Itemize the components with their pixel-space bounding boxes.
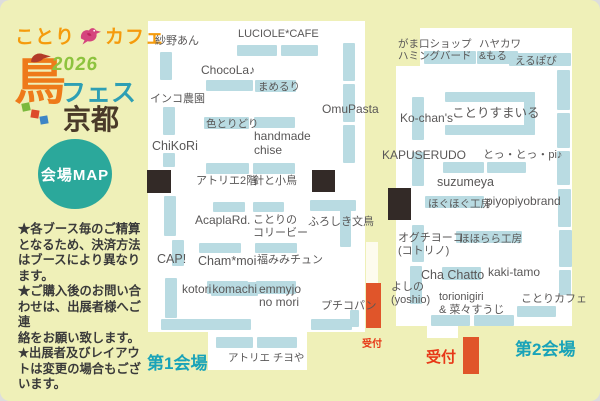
booth-bar [216, 337, 253, 348]
booth-label-inko-nouen: インコ農園 [150, 93, 205, 106]
booth-label-totto-pi: とっ・とっ・pi♪ [483, 149, 562, 162]
booth-bar [281, 45, 318, 56]
booth-label-cha-chatto: Cha Chatto [421, 268, 484, 282]
booth-bar [559, 230, 572, 267]
booth-bar [253, 163, 295, 174]
booth-label-piyopiyobrand: piyopiyobrand [486, 195, 561, 209]
logo-color-tag-icon [30, 109, 39, 118]
booth-label-emmyjo-rest: no mori [259, 296, 299, 310]
booth-label-chikori: ChiKoRi [152, 139, 198, 153]
entrance-notch [366, 242, 378, 284]
venue1-name: 第1会場 [147, 349, 207, 374]
venue2-reception-label: 受付 [426, 346, 456, 367]
booth-bar [253, 202, 284, 212]
booth-label-kotorino-koribi: ことりの コリービー [253, 214, 308, 239]
booth-bar [213, 202, 245, 212]
booth-label-irotoridori: 色とりどり [206, 118, 259, 130]
booth-bar [310, 200, 356, 211]
venue-map-badge-label: 会場MAP [41, 164, 109, 185]
venue2-floor-tab [427, 326, 458, 338]
bird-head-icon [30, 50, 52, 68]
booth-bar [557, 70, 570, 110]
booth-label-hoguhogu-kobo: ほぐほぐ工房 [428, 198, 491, 210]
logo-kyoto-text: 京都 [63, 98, 119, 138]
booth-label-chocola: ChocoLa♪ [201, 64, 255, 78]
booth-bar [559, 270, 571, 295]
booth-bar [474, 315, 514, 326]
booth-bar [161, 319, 251, 330]
venue2-reception-desk [463, 337, 479, 374]
booth-bar [237, 45, 277, 56]
booth-bar [311, 319, 352, 330]
booth-label-hohorara-kobo: ほほらら工房 [459, 233, 522, 245]
booth-label-torionigiri: torionigiri & 菜々すうじ [439, 291, 504, 316]
booth-label-gamaguchi-shop: がま口ショップ ハミングバード [398, 38, 472, 62]
black-block [312, 170, 335, 192]
black-block [388, 188, 411, 220]
booth-label-kapuserudo: KAPUSERUDO [382, 149, 466, 163]
venue-map-badge: 会場MAP [38, 139, 112, 209]
logo-year: 2026 [51, 54, 100, 76]
booth-bar [165, 278, 177, 318]
booth-label-mameruri: まめるり [258, 81, 300, 93]
booth-bar [350, 310, 359, 327]
booth-bar [445, 125, 535, 135]
booth-bar [557, 113, 570, 148]
booth-label-sayano-an: 紗野あん [155, 35, 199, 48]
booth-label-ko-chans: Ko-chan's [400, 112, 453, 126]
booth-bar [163, 153, 175, 167]
booth-label-kaki-tamo: kaki-tamo [488, 266, 540, 280]
booth-label-kotori-cafe: ことりカフェ [521, 293, 587, 306]
booth-bar [443, 162, 484, 173]
venue-map-flyer: ことり カフェ 2026 鳥 フェス 京都 会場MAP ★各ブース毎のご精算 と… [0, 0, 600, 401]
booth-label-cham-moi: Cham*moi [198, 254, 256, 268]
booth-bar [160, 52, 172, 80]
booth-label-oguchi-yoko: オグチヨーコ (コトリノ) [398, 232, 464, 257]
booth-label-furoshiki-buncho: ふろしき文鳥 [308, 216, 374, 229]
booth-label-yoshino: よしの (yoshio) [391, 281, 430, 306]
booth-bar [517, 306, 556, 317]
disclaimer-notes: ★各ブース毎のご精算 となるため、決済方法 はブースにより異なり ます。 ★ご購… [18, 222, 148, 393]
booth-label-fukumimi-chun: 福みみチュン [257, 254, 323, 267]
black-block [147, 170, 171, 193]
booth-label-acapla-rd: AcaplaRd. [195, 214, 250, 228]
booth-bar [431, 315, 470, 326]
logo-color-tag-icon [21, 102, 30, 111]
logo-kotori-text: ことり [15, 22, 75, 49]
booth-label-atelier-2f: アトリエ2階 [196, 175, 257, 188]
logo-kotori-cafe: ことり カフェ [15, 22, 165, 49]
booth-bar [254, 117, 295, 128]
booth-bar [206, 163, 249, 174]
booth-label-handmade-chise: handmade chise [254, 130, 311, 157]
booth-bar [487, 162, 526, 173]
venue2-name: 第2会場 [515, 335, 575, 360]
booth-bar [206, 80, 253, 91]
booth-bar [343, 43, 355, 81]
booth-label-erupopi: えるぽぴ [515, 55, 557, 67]
booth-bar [257, 337, 297, 348]
booth-bar [163, 107, 175, 135]
booth-bar [255, 243, 297, 253]
booth-label-atelier-chiyoya: アトリエ チヨや [228, 352, 304, 364]
booth-label-luciole-cafe: LUCIOLE*CAFE [238, 28, 319, 41]
logo-color-tag-icon [39, 115, 48, 124]
booth-label-kotori-sumairu: ことりすまいる [452, 106, 540, 120]
booth-label-kotorikomachi: kotorikomachi [182, 283, 258, 297]
bird-icon [78, 25, 102, 46]
booth-bar [445, 92, 535, 102]
booth-label-hari-to-kotori: 針と小鳥 [253, 175, 297, 188]
booth-bar [164, 196, 176, 236]
venue1-reception-label: 受付 [362, 335, 382, 350]
booth-bar [199, 243, 241, 253]
booth-bar [343, 125, 355, 163]
booth-label-suzumeya: suzumeya [437, 175, 494, 189]
booth-label-petit-copain: プチコパン [321, 300, 377, 313]
booth-label-omupasta: OmuPasta [322, 103, 379, 117]
booth-label-cap: CAP! [157, 252, 186, 266]
